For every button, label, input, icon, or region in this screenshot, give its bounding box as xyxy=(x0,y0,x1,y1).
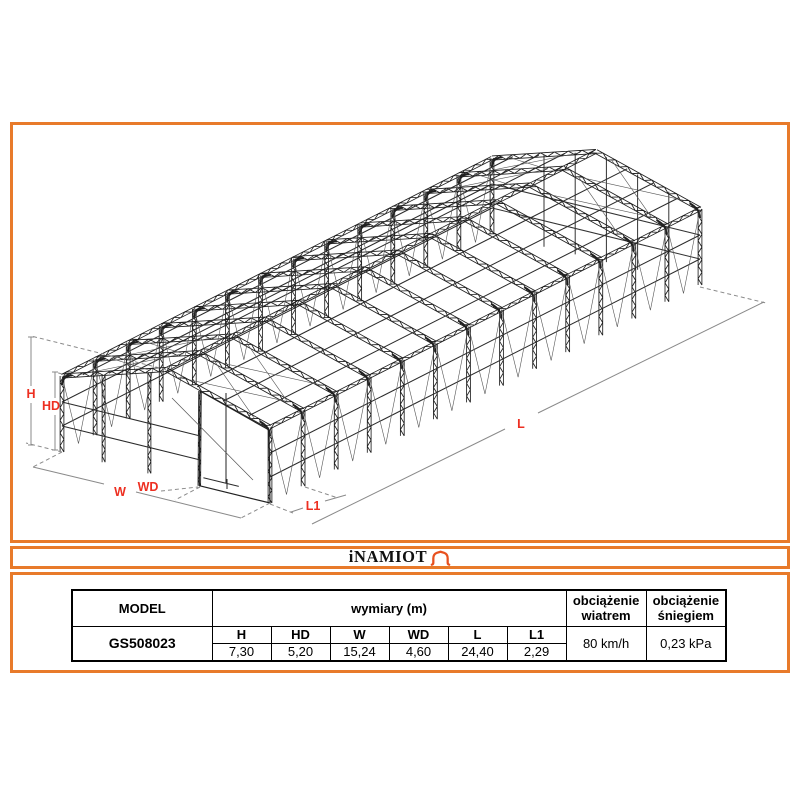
dimensions-header: wymiary (m) xyxy=(212,590,566,626)
dim-col-wd: WD xyxy=(389,626,448,643)
dim-col-l: L xyxy=(448,626,507,643)
snow-load-header: obciążenie śniegiem xyxy=(646,590,726,626)
spec-table: MODEL wymiary (m) obciążenie wiatrem obc… xyxy=(71,589,727,662)
dim-col-h: H xyxy=(212,626,271,643)
snow-load-value: 0,23 kPa xyxy=(646,626,726,661)
wind-load-header: obciążenie wiatrem xyxy=(566,590,646,626)
dim-col-w: W xyxy=(330,626,389,643)
dim-value-l1: 2,29 xyxy=(507,643,566,661)
wind-load-value: 80 km/h xyxy=(566,626,646,661)
dim-value-h: 7,30 xyxy=(212,643,271,661)
brand-name: iNAMIOT xyxy=(349,549,427,566)
tent-icon xyxy=(430,549,451,566)
model-value: GS508023 xyxy=(72,626,212,661)
dim-value-l: 24,40 xyxy=(448,643,507,661)
dim-col-l1: L1 xyxy=(507,626,566,643)
dim-col-hd: HD xyxy=(271,626,330,643)
drawing-frame xyxy=(10,122,790,543)
brand-logo: iNAMIOT xyxy=(349,549,451,566)
datasheet-page: iNAMIOT MODEL wymiary (m) obciążenie wia… xyxy=(0,0,800,800)
logo-strip: iNAMIOT xyxy=(10,546,790,569)
dim-value-w: 15,24 xyxy=(330,643,389,661)
spec-table-frame: MODEL wymiary (m) obciążenie wiatrem obc… xyxy=(10,572,790,673)
dim-value-wd: 4,60 xyxy=(389,643,448,661)
model-header: MODEL xyxy=(72,590,212,626)
dim-value-hd: 5,20 xyxy=(271,643,330,661)
